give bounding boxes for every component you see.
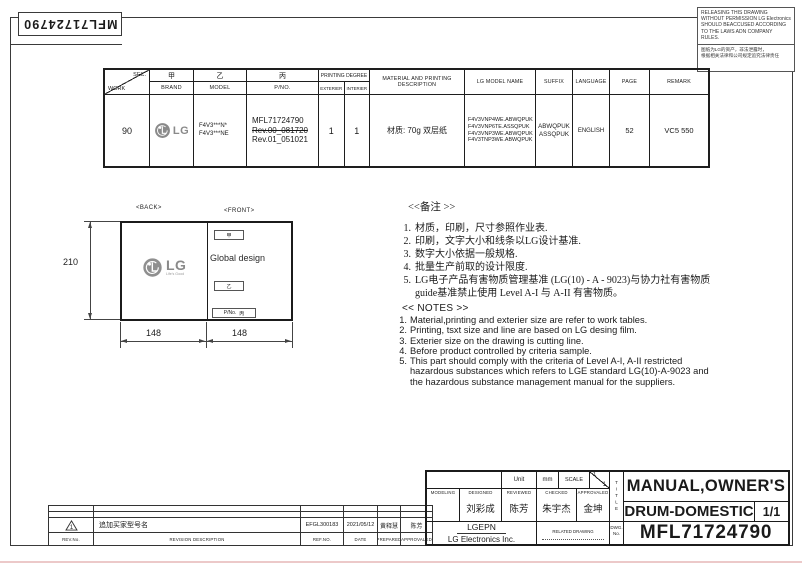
spec-col-printing-degree: PRINTING DEGREE EXTERIER INTERIER 1 1 [319, 70, 370, 166]
note-number: 2. [398, 235, 415, 248]
reviewed-name: 陈芳 [509, 495, 528, 521]
cover-spine-line [207, 223, 208, 319]
cover-outline: LG Life's Good 甲 Global design 乙 P/No. 丙 [120, 221, 293, 321]
note-text: 印刷，文字大小和线条以LG设计基准. [415, 235, 581, 248]
note-en-item: 3. Exterier size on the drawing is cutti… [398, 336, 743, 346]
brand-value: LG [150, 95, 193, 166]
notes-section: <<备注 >> 1. 材质，印刷，尺寸参照作业表. 2. 印刷，文字大小和线条以… [398, 199, 743, 387]
pno-rev1: Rev.01_051021 [252, 135, 308, 145]
title-line1: MANUAL,OWNER'S [624, 472, 788, 502]
cover-global-design: Global design [210, 253, 292, 263]
revision-header-row: REV.No. REVISION DESCRIPTION REF.NO. DAT… [49, 533, 432, 545]
spec-col-suffix: SUFFIX ABWQPUK ASSQPUK [536, 70, 573, 166]
language-header: LANGUAGE [573, 70, 609, 95]
part-number-stamp-text: MFL71724790 [23, 17, 118, 31]
fold-mark-line [10, 44, 122, 45]
lg-logo-icon [154, 122, 171, 139]
bottom-strip [0, 561, 802, 563]
scale-value-cell: 1 1 [590, 472, 610, 489]
title-block: Unit mm SCALE 1 1 MODELING DESIGNED 刘彩成 … [425, 470, 790, 546]
note-number: 3. [398, 248, 415, 261]
company-full: LG Electronics Inc. [448, 535, 515, 544]
note-text: Exterier size on the drawing is cutting … [410, 336, 584, 346]
lg-logo-icon [142, 257, 163, 278]
note-cn-item: 5. LG电子产品有害物质管理基准 (LG(10) - A - 9023)与协力… [398, 274, 743, 300]
note-en-item: 2. Printing, tsxt size and line are base… [398, 325, 743, 335]
checked-name: 朱宇杰 [542, 495, 571, 521]
spec-col-lg-model-name: LG MODEL NAME F4V3VNP4WE.ABWQPUK F4V3VNP… [465, 70, 536, 166]
revision-description: 追加买家型号名 [94, 518, 301, 532]
exterier-value: 1 [319, 95, 345, 166]
material-header: MATERIAL AND PRINTING DESCRIPTION [370, 70, 464, 95]
confidentiality-notice-en: RELEASING THIS DRAWING WITHOUT PERMISSIO… [698, 8, 794, 45]
cover-lg-text: LG [166, 259, 186, 272]
sec-work-header: SEC. WORK [105, 70, 149, 95]
related-drawing-cell: RELATED DRAWING [537, 522, 610, 544]
confidentiality-notice: RELEASING THIS DRAWING WITHOUT PERMISSIO… [697, 7, 795, 72]
remark-value: VC5 550 [650, 95, 708, 166]
material-value: 材质: 70g 双层纸 [370, 95, 464, 166]
interier-header: INTERIER [345, 82, 370, 94]
cover-pno-label: P/No. [224, 310, 237, 316]
printing-degree-header: PRINTING DEGREE EXTERIER INTERIER [319, 70, 369, 95]
cover-brand-placeholder: 甲 [214, 230, 244, 240]
revision-header-description: REVISION DESCRIPTION [94, 533, 301, 545]
pno-header-label: P/NO. [247, 82, 318, 94]
note-en-item: 4. Before product controlled by criteria… [398, 346, 743, 356]
note-text: Printing, tsxt size and line are based o… [410, 325, 637, 335]
revision-ref-no: EFGL300183 [301, 518, 344, 532]
note-number: 4. [398, 346, 410, 356]
lg-model-name-header: LG MODEL NAME [465, 70, 535, 95]
spec-col-model: 乙 MODEL F4V3***N* F4V3***NE [194, 70, 247, 166]
spec-col-work: SEC. WORK 90 [105, 70, 150, 166]
sheet-number: 1/1 [755, 502, 788, 522]
width-dim-ext-right [292, 322, 293, 348]
lg-model-name-value: F4V3VNP4WE.ABWQPUK F4V3VNP6TE.ASSQPUK F4… [465, 95, 535, 166]
title-line2: DRUM-DOMESTIC [624, 502, 755, 522]
spec-col-material: MATERIAL AND PRINTING DESCRIPTION 材质: 70… [370, 70, 465, 166]
note-text: This part should comply with the criteri… [410, 356, 709, 387]
printing-degree-label: PRINTING DEGREE [319, 70, 369, 82]
dwg-no-value: MFL71724790 [624, 522, 788, 544]
cover-lg-tagline: Life's Good [166, 272, 186, 276]
modeling-label: MODELING [431, 489, 456, 495]
part-number-stamp: MFL71724790 [18, 12, 122, 36]
title-block-blank-cell [427, 472, 502, 489]
revision-entry-row: 1 追加买家型号名 EFGL300183 2021/05/12 黄释慧 陈芳 [49, 518, 432, 533]
arrow-up-icon [88, 222, 92, 228]
note-text: 材质，印刷，尺寸参照作业表. [415, 222, 548, 235]
width-dim-line-left [121, 341, 206, 342]
width-dim-line-right [207, 341, 292, 342]
approvaled-cell: APPROVALED 金坤 [577, 489, 610, 522]
note-number: 1. [398, 315, 410, 325]
approvaled-name: 金坤 [583, 495, 602, 521]
notes-en-title: << NOTES >> [402, 303, 743, 314]
note-text: Before product controlled by criteria sa… [410, 346, 592, 356]
related-drawing-label: RELATED DRAWING [552, 527, 593, 534]
revision-header-date: DATE [344, 533, 378, 545]
spec-col-brand: 甲 BRAND LG [150, 70, 194, 166]
note-cn-item: 3. 数字大小依据一般规格. [398, 248, 743, 261]
pno-value: MFL71724790 Rev.00_081720 Rev.01_051021 [247, 95, 318, 166]
brand-header-label: BRAND [150, 82, 193, 94]
language-value: ENGLISH [573, 95, 609, 166]
lg-logo-text: LG [173, 125, 189, 137]
cover-pno-placeholder: P/No. 丙 [212, 308, 256, 318]
note-number: 4. [398, 261, 415, 274]
width-dim-ext-left [120, 322, 121, 348]
note-number: 5. [398, 356, 410, 387]
arrow-left-icon [207, 339, 213, 343]
work-value: 90 [105, 95, 149, 166]
scale-label: SCALE [559, 472, 590, 489]
height-dim-value: 210 [63, 257, 78, 267]
company-cell: LGEPN LG Electronics Inc. [427, 522, 537, 544]
spec-table: SEC. WORK 90 甲 BRAND LG 乙 [103, 68, 710, 168]
revision-marker: 1 [49, 518, 94, 532]
front-panel-label: <FRONT> [224, 208, 254, 214]
revision-header-prepared: PREPARED [378, 533, 401, 545]
note-en-item: 5. This part should comply with the crit… [398, 356, 743, 387]
spec-col-remark: REMARK VC5 550 [650, 70, 708, 166]
checked-cell: CHECKED 朱宇杰 [537, 489, 577, 522]
exterier-header: EXTERIER [319, 82, 345, 94]
width-dim-value-right: 148 [232, 328, 247, 338]
height-dim-ext-bottom [84, 319, 120, 320]
scale-numerator: 1 [593, 472, 596, 478]
arrow-left-icon [121, 339, 127, 343]
revision-triangle-icon: 1 [65, 520, 78, 531]
reviewed-cell: REVIEWED 陈芳 [502, 489, 537, 522]
note-cn-item: 1. 材质，印刷，尺寸参照作业表. [398, 222, 743, 235]
modeling-cell: MODELING [427, 489, 460, 522]
note-text: 数字大小依据一般规格. [415, 248, 518, 261]
note-en-item: 1. Material,printing and exterier size a… [398, 315, 743, 325]
drawing-sheet: MFL71724790 RELEASING THIS DRAWING WITHO… [0, 0, 802, 567]
note-text: Material,printing and exterier size are … [410, 315, 647, 325]
revision-number: 1 [69, 524, 73, 531]
note-number: 5. [398, 274, 415, 300]
designed-cell: DESIGNED 刘彩成 [460, 489, 502, 522]
pno-rev0: Rev.00_081720 [252, 126, 308, 136]
dwg-no-label: DWG. No. [610, 522, 624, 544]
cover-lg-logo: LG Life's Good [142, 257, 186, 278]
back-panel-label: <BACK> [136, 205, 162, 211]
spec-col-pno: 丙 P/NO. MFL71724790 Rev.00_081720 Rev.01… [247, 70, 319, 166]
spec-col-language: LANGUAGE ENGLISH [573, 70, 610, 166]
revision-prepared: 黄释慧 [378, 518, 401, 532]
width-dim-value-left: 148 [146, 328, 161, 338]
note-cn-item: 2. 印刷，文字大小和线条以LG设计基准. [398, 235, 743, 248]
printing-degree-values: 1 1 [319, 95, 369, 166]
model-value: F4V3***N* F4V3***NE [194, 95, 246, 166]
suffix-value: ABWQPUK ASSQPUK [536, 95, 572, 166]
spec-col-page: PAGE 52 [610, 70, 650, 166]
page-header: PAGE [610, 70, 649, 95]
model-header-label: MODEL [194, 82, 246, 94]
page-value: 52 [610, 95, 649, 166]
unit-label: Unit [502, 472, 537, 489]
suffix-header: SUFFIX [536, 70, 572, 95]
note-cn-item: 4. 批量生产前取的设计限度. [398, 261, 743, 274]
cover-pno-cn: 丙 [239, 310, 244, 317]
brand-header: 甲 BRAND [150, 70, 193, 95]
note-text: 批量生产前取的设计限度. [415, 261, 528, 274]
cover-model-placeholder: 乙 [214, 281, 244, 291]
pno-header: 丙 P/NO. [247, 70, 318, 95]
pno-number: MFL71724790 [252, 116, 308, 126]
sec-header-label: SEC. [133, 72, 146, 78]
designed-name: 刘彩成 [466, 495, 495, 521]
revision-date: 2021/05/12 [344, 518, 378, 532]
revision-table: 1 追加买家型号名 EFGL300183 2021/05/12 黄释慧 陈芳 R… [48, 505, 433, 546]
note-number: 2. [398, 325, 410, 335]
confidentiality-notice-cn: 图纸为LG的资产，非法泄露时， 根据相关法律和公司规定追究法律责任 [698, 45, 794, 61]
company-short: LGEPN [457, 522, 506, 534]
unit-value: mm [537, 472, 559, 489]
revision-header-rev-no: REV.No. [49, 533, 94, 545]
remark-header: REMARK [650, 70, 708, 95]
scale-denominator: 1 [603, 482, 606, 488]
arrow-right-icon [285, 339, 291, 343]
notes-cn-title: <<备注 >> [408, 199, 743, 214]
note-number: 1. [398, 222, 415, 235]
interier-value: 1 [345, 95, 370, 166]
note-text: LG电子产品有害物质管理基准 (LG(10) - A - 9023)与协力社有害… [415, 274, 710, 300]
brand-header-cn: 甲 [150, 70, 193, 82]
related-drawing-dotted-line [542, 539, 603, 540]
model-header: 乙 MODEL [194, 70, 246, 95]
pno-header-cn: 丙 [247, 70, 318, 82]
title-label-vertical: TITLE [610, 472, 624, 522]
arrow-right-icon [199, 339, 205, 343]
model-header-cn: 乙 [194, 70, 246, 82]
revision-header-ref-no: REF.NO. [301, 533, 344, 545]
height-dim-line [90, 222, 91, 320]
work-header-label: WORK [108, 86, 125, 92]
arrow-down-icon [88, 313, 92, 319]
note-number: 3. [398, 336, 410, 346]
width-dim-ext-mid [206, 322, 207, 348]
